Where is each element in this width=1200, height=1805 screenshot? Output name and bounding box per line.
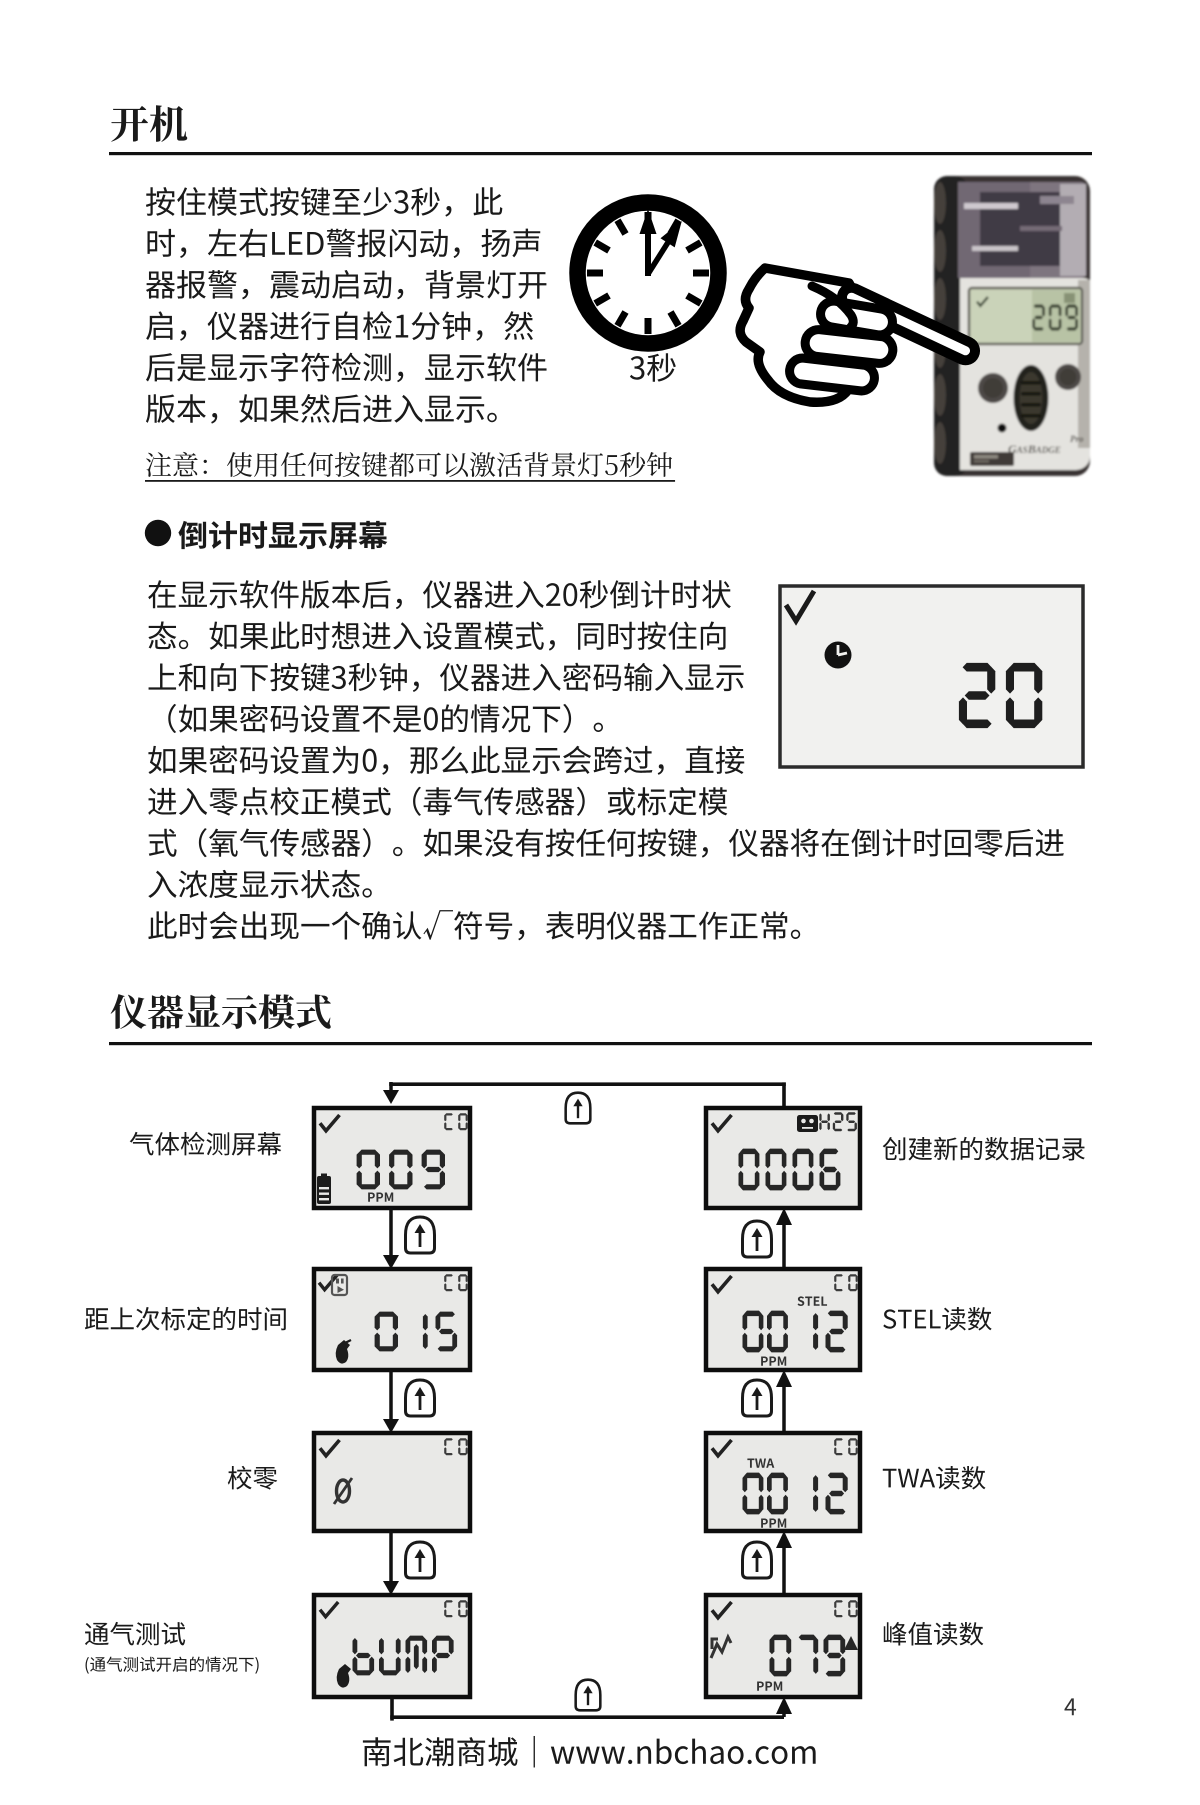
svg-text:Pro: Pro xyxy=(1070,434,1084,444)
svg-text:GASBADGE: GASBADGE xyxy=(1008,442,1061,456)
